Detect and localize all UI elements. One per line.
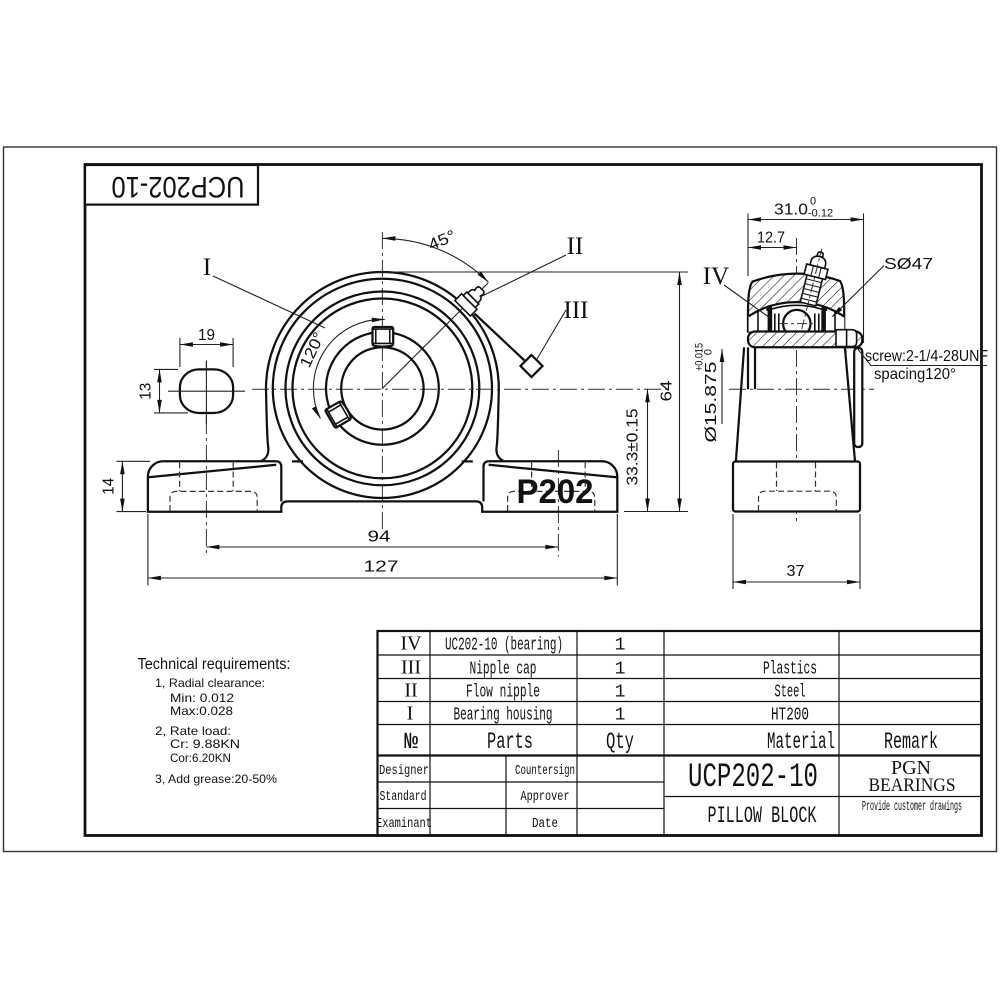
svg-text:Cor:6.20KN: Cor:6.20KN	[170, 751, 231, 765]
svg-text:1: 1	[615, 636, 626, 656]
svg-text:31.0: 31.0	[774, 202, 808, 219]
svg-text:Standard: Standard	[380, 789, 427, 805]
svg-text:1: 1	[615, 706, 626, 726]
svg-text:1: 1	[615, 683, 626, 703]
svg-text:Steel: Steel	[775, 683, 806, 703]
svg-text:Remark: Remark	[884, 729, 938, 755]
svg-text:Countersign: Countersign	[515, 763, 575, 779]
svg-text:Max:0.028: Max:0.028	[170, 704, 233, 718]
svg-text:Bearing housing: Bearing housing	[454, 706, 553, 726]
svg-text:BEARINGS: BEARINGS	[869, 775, 956, 796]
svg-text:UC202-10 (bearing): UC202-10 (bearing)	[445, 636, 563, 656]
svg-text:19: 19	[198, 327, 215, 344]
svg-text:14: 14	[101, 478, 118, 495]
svg-text:13: 13	[138, 383, 155, 400]
svg-text:screw:2-1/4-28UNF: screw:2-1/4-28UNF	[865, 348, 988, 365]
svg-text:III: III	[564, 297, 589, 324]
svg-text:P202: P202	[517, 473, 594, 511]
svg-text:Approver: Approver	[521, 789, 570, 805]
svg-text:Flow nipple: Flow nipple	[466, 683, 540, 703]
svg-text:Cr: 9.88KN: Cr: 9.88KN	[170, 737, 240, 751]
svg-text:127: 127	[364, 559, 399, 576]
svg-text:III: III	[401, 657, 421, 679]
svg-text:Parts: Parts	[487, 729, 533, 755]
svg-text:Material: Material	[767, 729, 835, 755]
svg-text:1, Radial clearance:: 1, Radial clearance:	[155, 676, 265, 690]
svg-text:33.3±0.15: 33.3±0.15	[625, 408, 642, 485]
svg-text:Min: 0.012: Min: 0.012	[170, 691, 234, 705]
svg-text:0: 0	[703, 349, 715, 355]
svg-text:Designer: Designer	[379, 763, 429, 779]
svg-text:I: I	[407, 703, 414, 725]
svg-text:UCP202-10: UCP202-10	[688, 759, 818, 797]
svg-text:№: №	[404, 729, 418, 755]
svg-text:Qty: Qty	[606, 729, 634, 755]
svg-text:II: II	[567, 233, 584, 260]
svg-text:64: 64	[659, 380, 676, 401]
svg-text:I: I	[203, 254, 211, 281]
svg-text:Nipple cap: Nipple cap	[470, 660, 537, 680]
svg-text:UCP202-10: UCP202-10	[112, 170, 245, 203]
svg-text:+0.015: +0.015	[694, 343, 706, 371]
svg-text:2, Rate load:: 2, Rate load:	[155, 724, 231, 738]
svg-text:IV: IV	[400, 633, 422, 655]
svg-text:spacing120°: spacing120°	[874, 366, 956, 383]
svg-text:HT200: HT200	[771, 706, 809, 726]
svg-text:-0.12: -0.12	[808, 208, 833, 220]
svg-text:3, Add grease:20-50%: 3, Add grease:20-50%	[155, 772, 277, 786]
svg-text:II: II	[404, 680, 417, 702]
svg-text:Technical requirements:: Technical requirements:	[138, 656, 291, 673]
svg-text:PILLOW BLOCK: PILLOW BLOCK	[708, 803, 817, 829]
svg-text:1: 1	[615, 660, 626, 680]
svg-text:12.7: 12.7	[757, 230, 785, 247]
svg-text:37: 37	[787, 563, 805, 580]
svg-text:Provide customer drawings: Provide customer drawings	[862, 799, 962, 815]
svg-text:0: 0	[810, 196, 816, 208]
svg-text:Examinant: Examinant	[376, 816, 432, 832]
svg-text:Plastics: Plastics	[763, 660, 817, 680]
svg-text:SØ47: SØ47	[884, 256, 933, 273]
svg-text:94: 94	[368, 529, 391, 546]
svg-text:Ø15.875: Ø15.875	[703, 361, 720, 442]
svg-text:Date: Date	[532, 816, 558, 832]
